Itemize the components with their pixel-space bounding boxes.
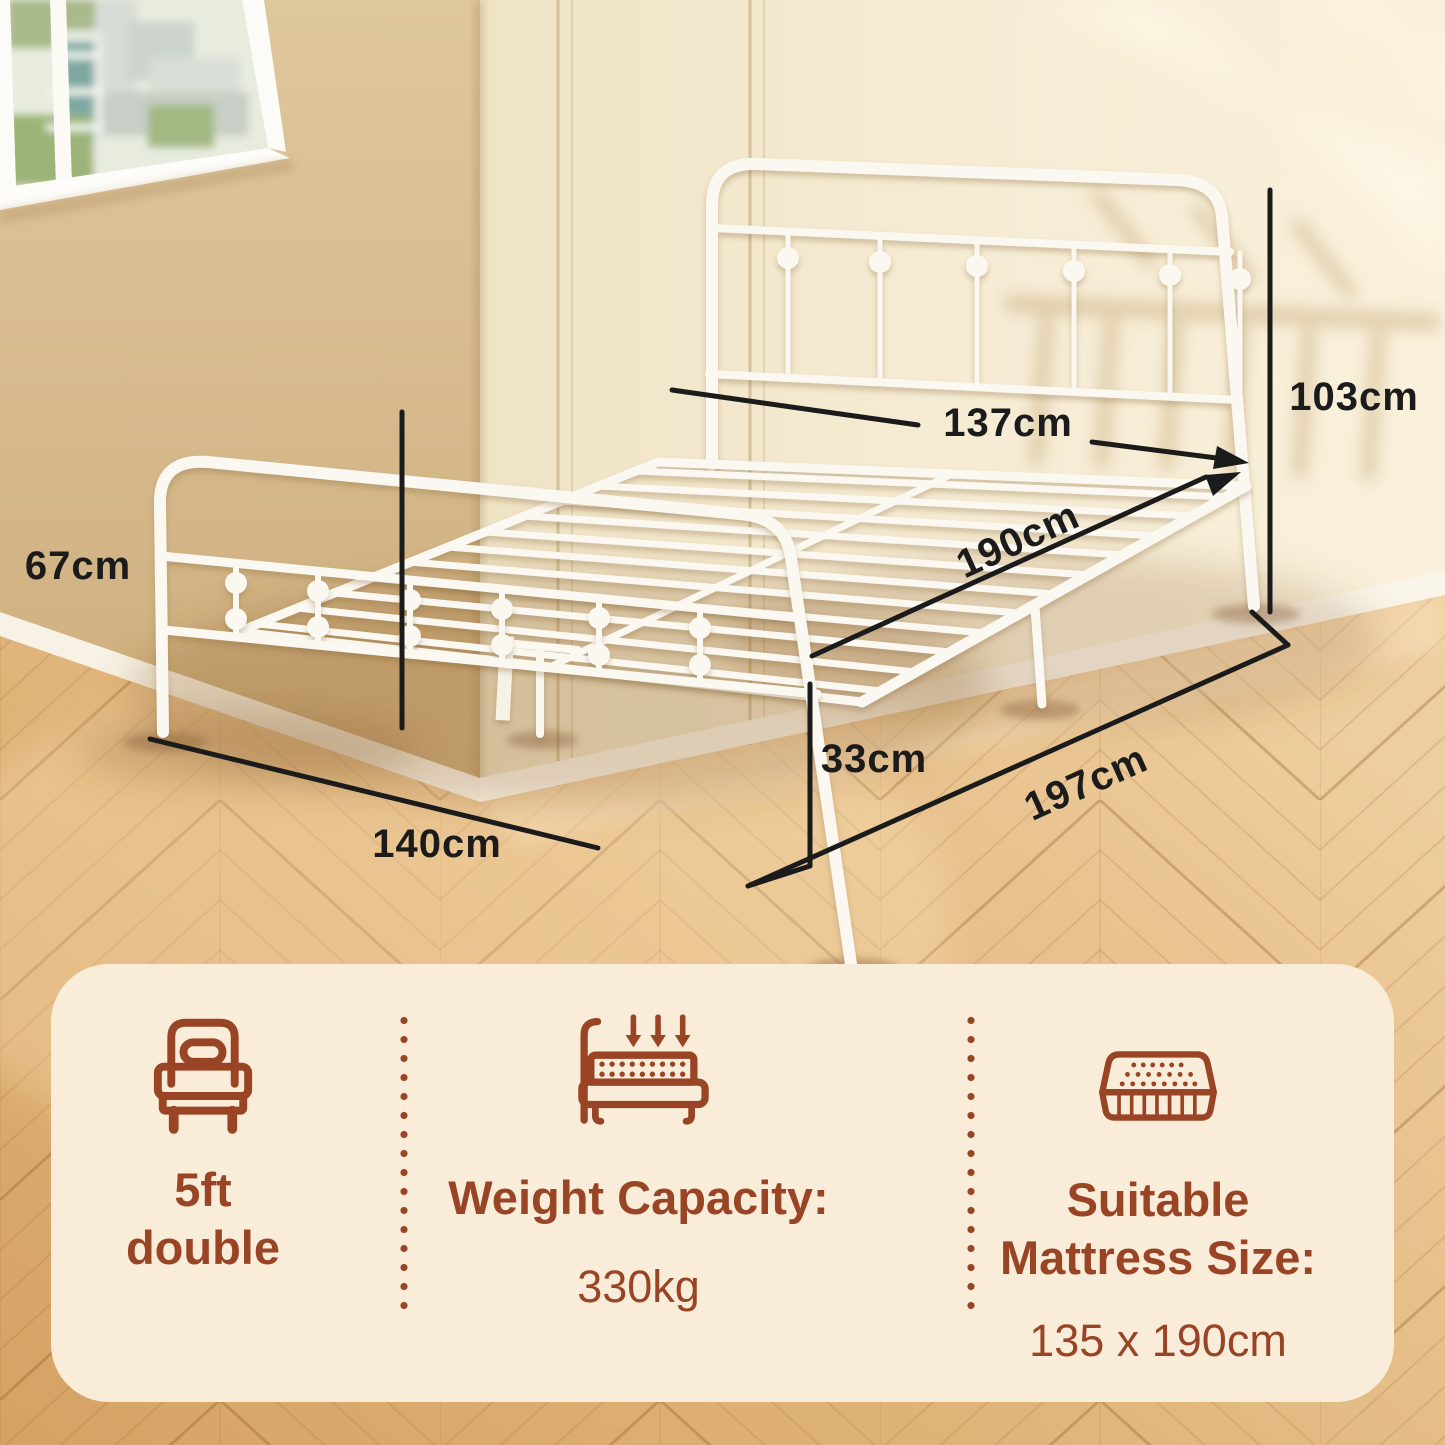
mattress-title-line2: Mattress Size: <box>1000 1229 1316 1287</box>
weight-capacity-icon <box>555 1008 723 1141</box>
panel-column-mattress: Suitable Mattress Size: 135 x 190cm <box>922 964 1394 1402</box>
info-panel: 5ft double <box>51 964 1394 1402</box>
mattress-icon <box>1089 1046 1227 1131</box>
product-infographic: 103cm 137cm 190cm 67cm 33cm 197cm 140cm … <box>0 0 1445 1445</box>
weight-capacity-title: Weight Capacity: <box>448 1169 828 1227</box>
dimension-label-footboard-height: 67cm <box>25 546 131 586</box>
size-label-line1: 5ft <box>126 1161 280 1219</box>
size-label-line2: double <box>126 1219 280 1277</box>
mattress-title-line1: Suitable <box>1000 1171 1316 1229</box>
dimension-label-headboard-height: 103cm <box>1289 377 1419 417</box>
panel-column-weight: Weight Capacity: 330kg <box>355 964 922 1402</box>
dimension-label-overall-width: 140cm <box>372 824 502 864</box>
single-bed-icon <box>142 1010 264 1143</box>
mattress-size-value: 135 x 190cm <box>1029 1315 1287 1367</box>
dimension-label-base-height: 33cm <box>821 739 927 779</box>
weight-capacity-value: 330kg <box>577 1261 700 1313</box>
panel-column-size: 5ft double <box>51 964 355 1402</box>
dimension-label-headboard-width: 137cm <box>943 403 1073 443</box>
